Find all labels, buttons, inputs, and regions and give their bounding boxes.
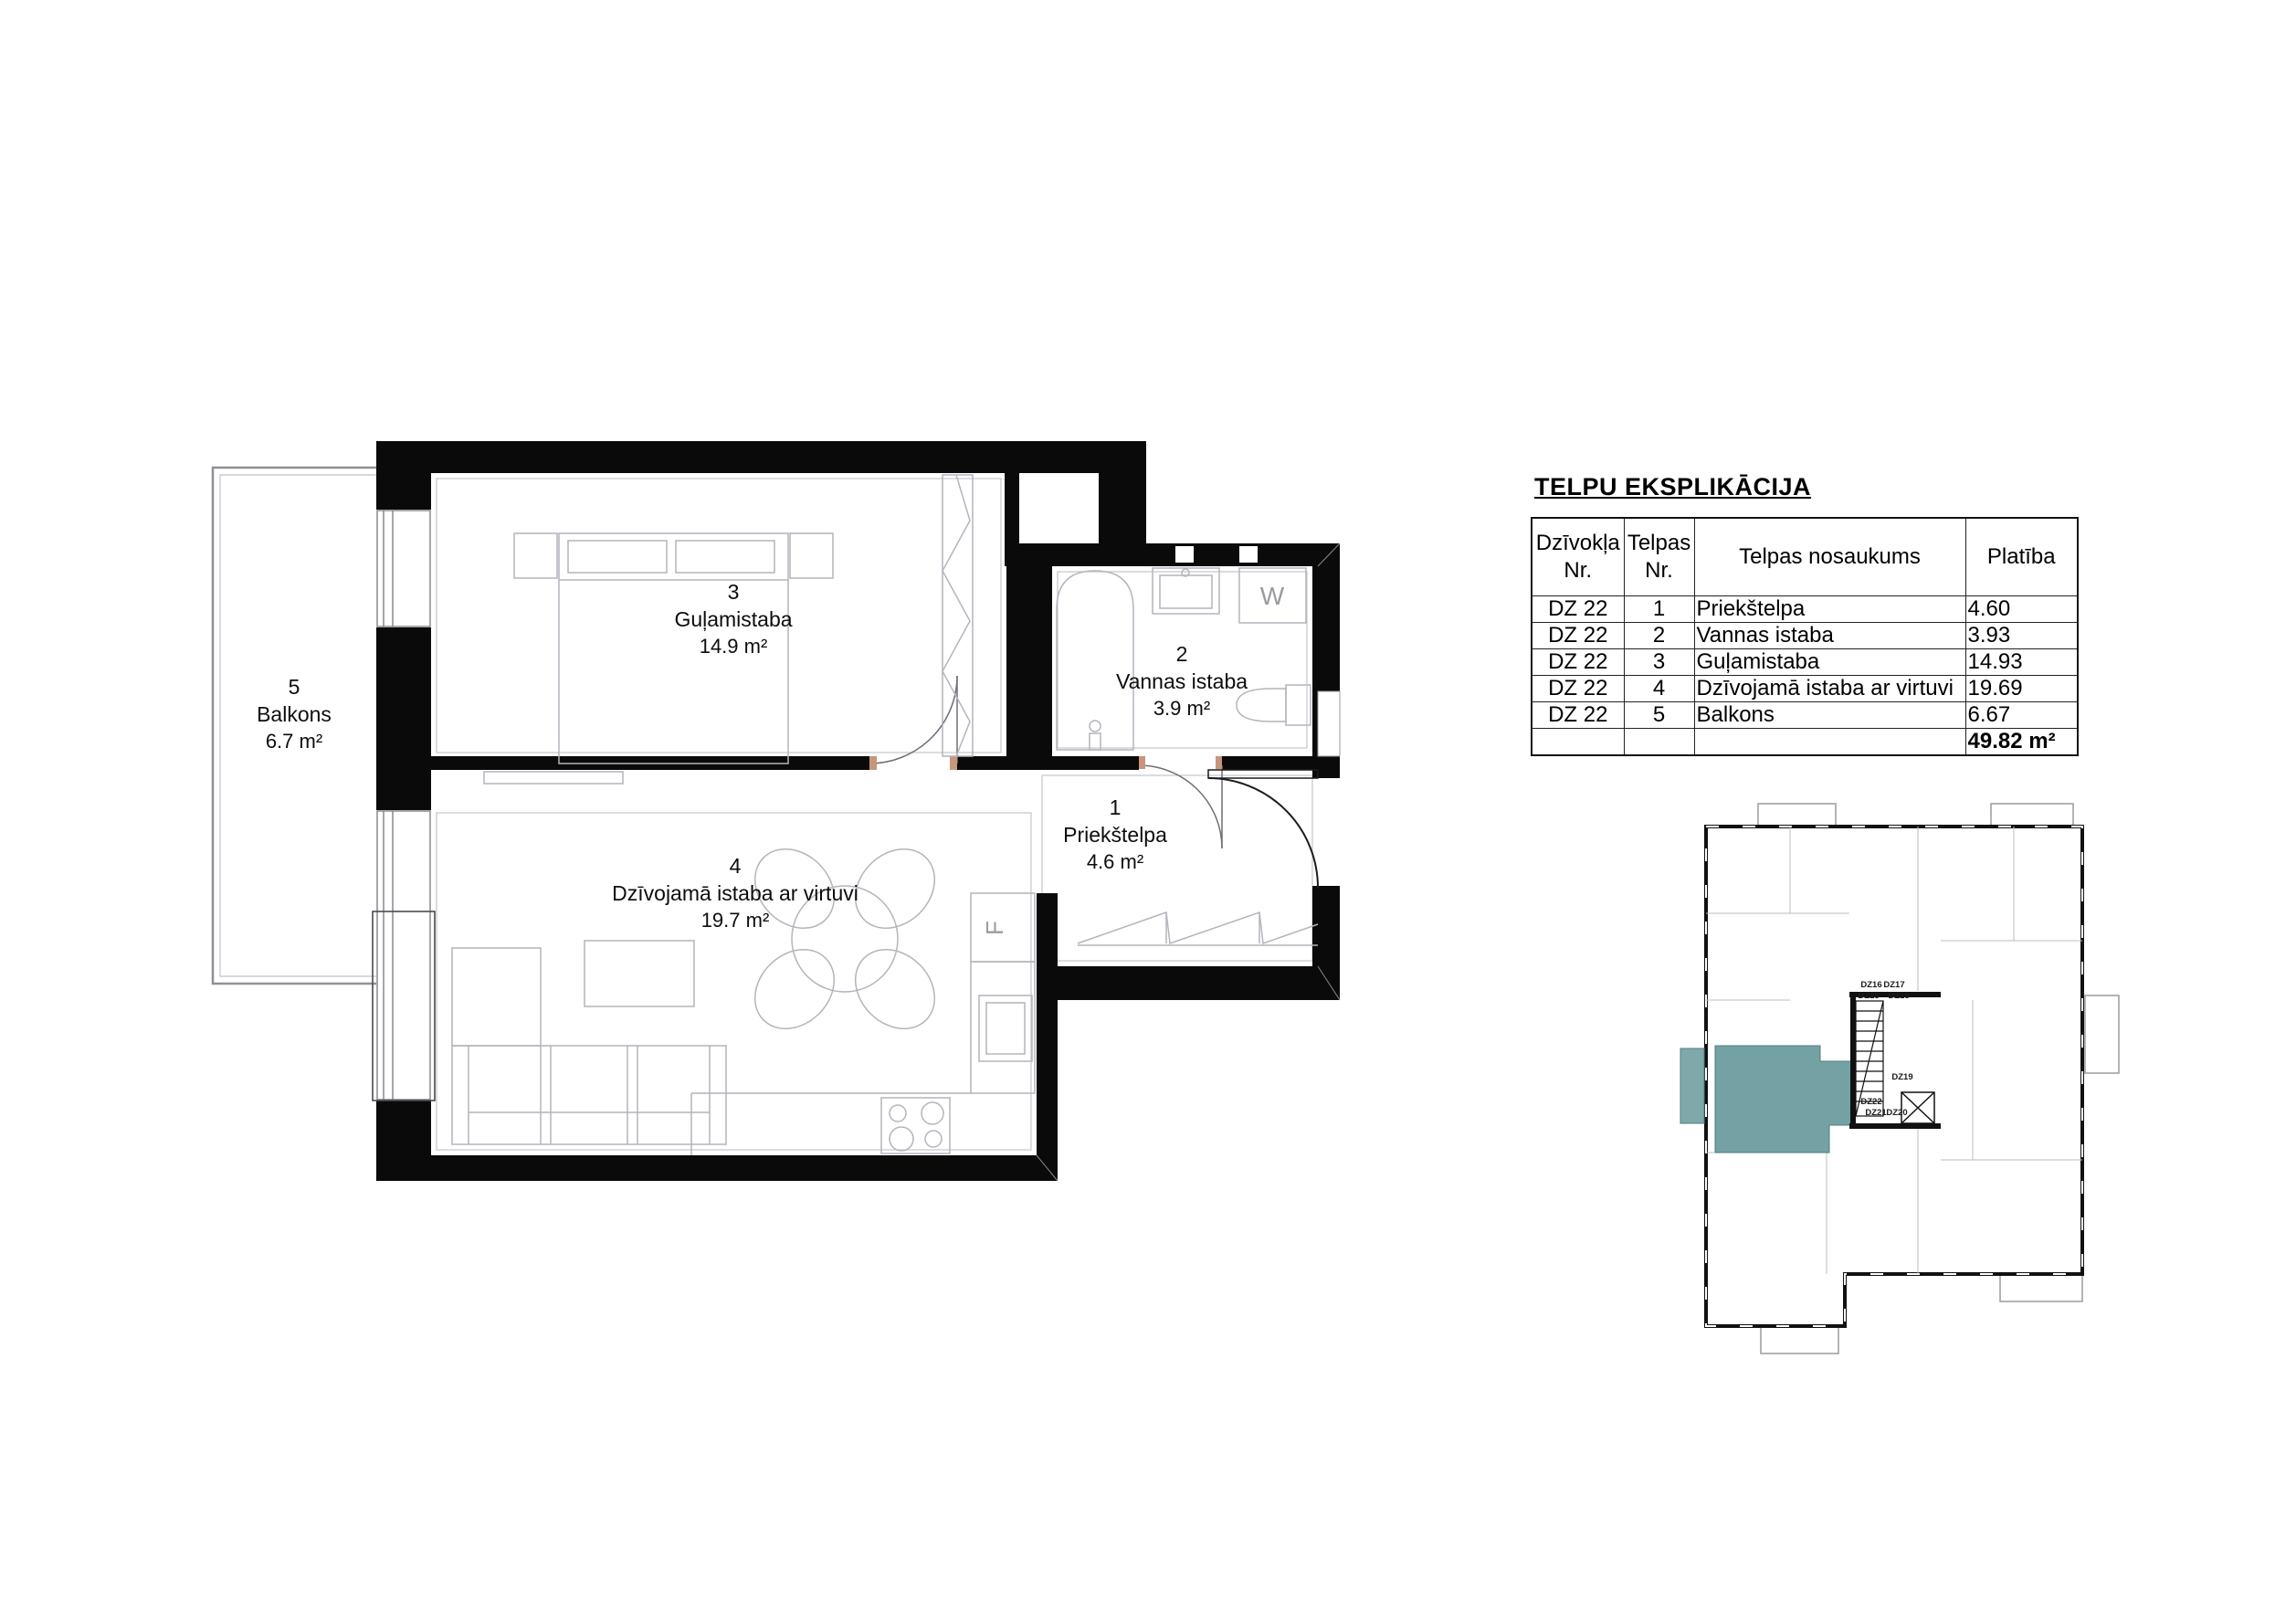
table-total-row: 49.82 m² [1532, 729, 2078, 756]
label-living-room: 4 Dzīvojamā istaba ar virtuvi 19.7 m² [612, 852, 858, 934]
cell-room-name: Vannas istaba [1694, 623, 1965, 649]
cell-room-no: 2 [1624, 623, 1694, 649]
room-number: 2 [1116, 640, 1248, 668]
toilet [1237, 685, 1311, 725]
explication-table: Dzīvokļa Nr. Telpas Nr. Telpas nosaukums… [1531, 517, 2079, 756]
room-name: Balkons [257, 700, 332, 728]
unit-label-dz19: DZ19 [1891, 1072, 1912, 1082]
nightstand-right [790, 533, 833, 578]
table-row: DZ 22 3 Guļamistaba 14.93 [1532, 649, 2078, 676]
radiator [484, 772, 623, 784]
room-number: 5 [257, 673, 332, 700]
cell-area: 4.60 [1965, 596, 2078, 623]
cell-room-no: 1 [1624, 596, 1694, 623]
col-header-apartment: Dzīvokļa Nr. [1532, 518, 1624, 596]
window-bedroom [377, 511, 430, 627]
room-name: Priekštelpa [1063, 821, 1167, 848]
cell-empty [1532, 729, 1624, 756]
cell-apartment: DZ 22 [1532, 676, 1624, 702]
balcony-door-leaf [373, 911, 435, 1101]
label-hallway: 1 Priekštelpa 4.6 m² [1063, 794, 1167, 876]
cell-empty [1694, 729, 1965, 756]
stove [881, 1098, 950, 1153]
room-number: 3 [674, 578, 792, 606]
cell-room-name: Guļamistaba [1694, 649, 1965, 676]
room-name: Dzīvojamā istaba ar virtuvi [612, 879, 858, 907]
cell-empty [1624, 729, 1694, 756]
walls [376, 441, 1340, 1181]
cell-room-no: 4 [1624, 676, 1694, 702]
room-area: 6.7 m² [257, 728, 332, 755]
label-bathroom: 2 Vannas istaba 3.9 m² [1116, 640, 1248, 722]
keyplan: DZ16 DZ17 DZ15 DZ18 DZ19 DZ22 DZ21 DZ20 [1680, 804, 2119, 1353]
explication-title: TELPU EKSPLIKĀCIJA [1534, 473, 1811, 501]
bedroom-door [869, 676, 957, 764]
floor-plan-sheet: W [0, 0, 2296, 1622]
hall-closet-rail [1078, 912, 1318, 945]
room-area: 19.7 m² [612, 907, 858, 934]
room-area: 14.9 m² [674, 633, 792, 660]
window-living [373, 811, 435, 1101]
washer-label: W [1260, 582, 1285, 610]
sofa [452, 948, 726, 1144]
cell-total-area: 49.82 m² [1965, 729, 2078, 756]
room-name: Guļamistaba [674, 606, 792, 633]
washing-machine: W [1239, 568, 1306, 623]
unit-label-dz22: DZ22 [1860, 1097, 1881, 1107]
table-header-row: Dzīvokļa Nr. Telpas Nr. Telpas nosaukums… [1532, 518, 2078, 596]
cell-room-no: 5 [1624, 702, 1694, 729]
cell-room-name: Dzīvojamā istaba ar virtuvi [1694, 676, 1965, 702]
kitchen-counter [691, 962, 1035, 1155]
label-balcony: 5 Balkons 6.7 m² [257, 673, 332, 755]
room-number: 1 [1063, 794, 1167, 821]
room-area: 4.6 m² [1063, 848, 1167, 876]
sink [1153, 568, 1219, 614]
col-header-area: Platība [1965, 518, 2078, 596]
coffee-table [585, 941, 694, 1006]
table-row: DZ 22 4 Dzīvojamā istaba ar virtuvi 19.6… [1532, 676, 2078, 702]
entry-door [1208, 770, 1318, 888]
cell-apartment: DZ 22 [1532, 596, 1624, 623]
nightstand-left [514, 533, 557, 578]
fridge-label: F [981, 921, 1008, 935]
unit-label-dz21: DZ21 [1865, 1108, 1887, 1118]
col-header-room-no: Telpas Nr. [1624, 518, 1694, 596]
cell-room-name: Balkons [1694, 702, 1965, 729]
label-bedroom: 3 Guļamistaba 14.9 m² [674, 578, 792, 660]
room-name: Vannas istaba [1116, 668, 1248, 695]
room-area: 3.9 m² [1116, 695, 1248, 722]
cell-apartment: DZ 22 [1532, 649, 1624, 676]
cell-apartment: DZ 22 [1532, 702, 1624, 729]
unit-label-dz20: DZ20 [1886, 1108, 1907, 1118]
cell-area: 6.67 [1965, 702, 2078, 729]
highlighted-unit-balcony [1680, 1048, 1704, 1123]
col-header-room-name: Telpas nosaukums [1694, 518, 1965, 596]
cell-room-no: 3 [1624, 649, 1694, 676]
fridge: F [971, 893, 1035, 962]
unit-label-dz15: DZ15 [1858, 991, 1880, 1001]
cell-room-name: Priekštelpa [1694, 596, 1965, 623]
unit-label-dz18: DZ18 [1888, 991, 1909, 1001]
cell-apartment: DZ 22 [1532, 623, 1624, 649]
cell-area: 14.93 [1965, 649, 2078, 676]
unit-label-dz17: DZ17 [1883, 980, 1904, 990]
cell-area: 3.93 [1965, 623, 2078, 649]
room-number: 4 [612, 852, 858, 879]
cell-area: 19.69 [1965, 676, 2078, 702]
unit-label-dz16: DZ16 [1860, 980, 1881, 990]
table-row: DZ 22 2 Vannas istaba 3.93 [1532, 623, 2078, 649]
table-row: DZ 22 1 Priekštelpa 4.60 [1532, 596, 2078, 623]
table-row: DZ 22 5 Balkons 6.67 [1532, 702, 2078, 729]
